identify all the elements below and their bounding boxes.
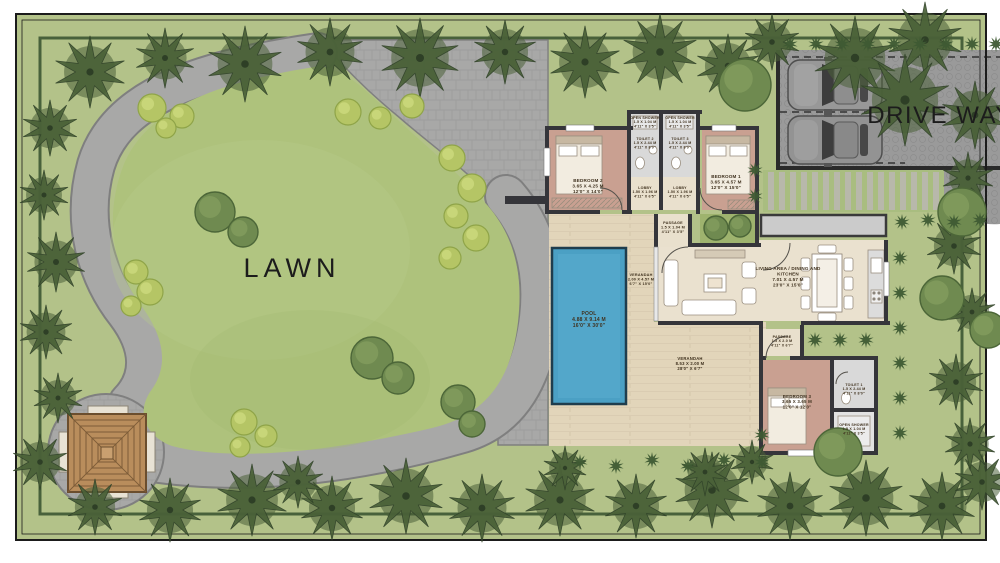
bush: [444, 204, 468, 228]
bush: [439, 247, 461, 269]
living-glass-wall: [654, 247, 658, 321]
lawn-label: LAWN: [243, 253, 340, 283]
label-toilet-2: TOILET 21.5 X 2.44 M4'11" X 8'0": [634, 137, 657, 149]
entry-ledge: [505, 196, 547, 204]
shrub-palm: [988, 36, 1000, 52]
kitchen-sink: [871, 258, 882, 273]
round-tree: [938, 188, 986, 236]
sofa-left: [664, 260, 678, 306]
gazebo-apex: [101, 447, 113, 459]
label-verandah-1: VERANDAH2.00 X 4.57 M6'7" X 15'0": [628, 273, 654, 286]
round-tree: [704, 216, 728, 240]
bush: [156, 118, 176, 138]
kitchen-hob: [871, 290, 882, 303]
driveway-label: DRIVE WAY: [867, 102, 1000, 129]
round-tree: [920, 276, 964, 320]
gazebo: [59, 406, 155, 498]
gazebo-bench-right: [146, 432, 155, 472]
site-plan-canvas: BEDROOM 23.65 X 4.25 M12'0" X 14'0"OPEN …: [0, 0, 1000, 563]
bush: [231, 409, 257, 435]
label-bedroom-2: BEDROOM 23.65 X 4.25 M12'0" X 14'0": [572, 178, 603, 194]
bush: [255, 425, 277, 447]
armchair-2: [742, 288, 756, 304]
dining-chair: [844, 296, 853, 309]
dining-chair: [801, 296, 810, 309]
bush: [463, 225, 489, 251]
round-tree: [228, 217, 258, 247]
bench-1: [728, 200, 754, 209]
label-passage-1: PASSAGE1.5 X 1.04 M4'11" X 3'5": [661, 221, 685, 234]
bush: [458, 174, 486, 202]
dining-chair: [818, 245, 836, 253]
round-tree: [382, 362, 414, 394]
bush: [439, 145, 465, 171]
label-open-shower-3: OPEN SHOWER1.5 X 1.04 M4'11" X 3'5": [665, 116, 695, 128]
grass-paver-strip: [763, 170, 948, 212]
bush: [138, 94, 166, 122]
dining-chair: [844, 277, 853, 290]
wc-2: [636, 157, 645, 169]
label-passage-2: PASSAGE1.5 X 2.0 M4'11" X 6'7": [771, 335, 793, 347]
sofa-bottom: [682, 300, 736, 315]
bush: [230, 437, 250, 457]
driveway-wall-left: [776, 50, 780, 170]
gazebo-bench-left: [59, 432, 68, 472]
bush: [137, 279, 163, 305]
label-open-shower-1: OPEN SHOWER1.5 X 1.04 M4'11" X 3'5": [839, 423, 869, 435]
utility-slab: [761, 215, 886, 236]
label-open-shower-2: OPEN SHOWER1.5 X 1.04 M4'11" X 3'5": [630, 116, 660, 128]
bush: [335, 99, 361, 125]
label-bedroom-1: BEDROOM 13.65 X 4.57 M12'0" X 15'0": [710, 174, 741, 190]
label-toilet-3: TOILET 31.5 X 2.44 M4'11" X 8'0": [669, 137, 692, 149]
wardrobe-2: [552, 198, 622, 208]
round-tree: [459, 411, 485, 437]
bush: [400, 94, 424, 118]
dining-chair: [818, 313, 836, 321]
wc-3: [672, 157, 681, 169]
dining-chair: [844, 258, 853, 271]
armchair-1: [742, 262, 756, 278]
bush: [369, 107, 391, 129]
bush: [121, 296, 141, 316]
label-bedroom-3: BEDROOM 33.65 X 3.65 M12'0" X 12'0": [782, 394, 812, 409]
label-toilet-1: TOILET 11.5 X 2.44 M4'11" X 8'0": [843, 383, 866, 395]
round-tree: [729, 215, 751, 237]
label-verandah-2: VERANDAH8.53 X 2.00 M28'0" X 6'7": [676, 356, 705, 371]
tv-console: [695, 250, 745, 258]
site-plan: BEDROOM 23.65 X 4.25 M12'0" X 14'0"OPEN …: [0, 0, 1000, 563]
round-tree: [970, 312, 1000, 348]
round-tree: [719, 59, 771, 111]
